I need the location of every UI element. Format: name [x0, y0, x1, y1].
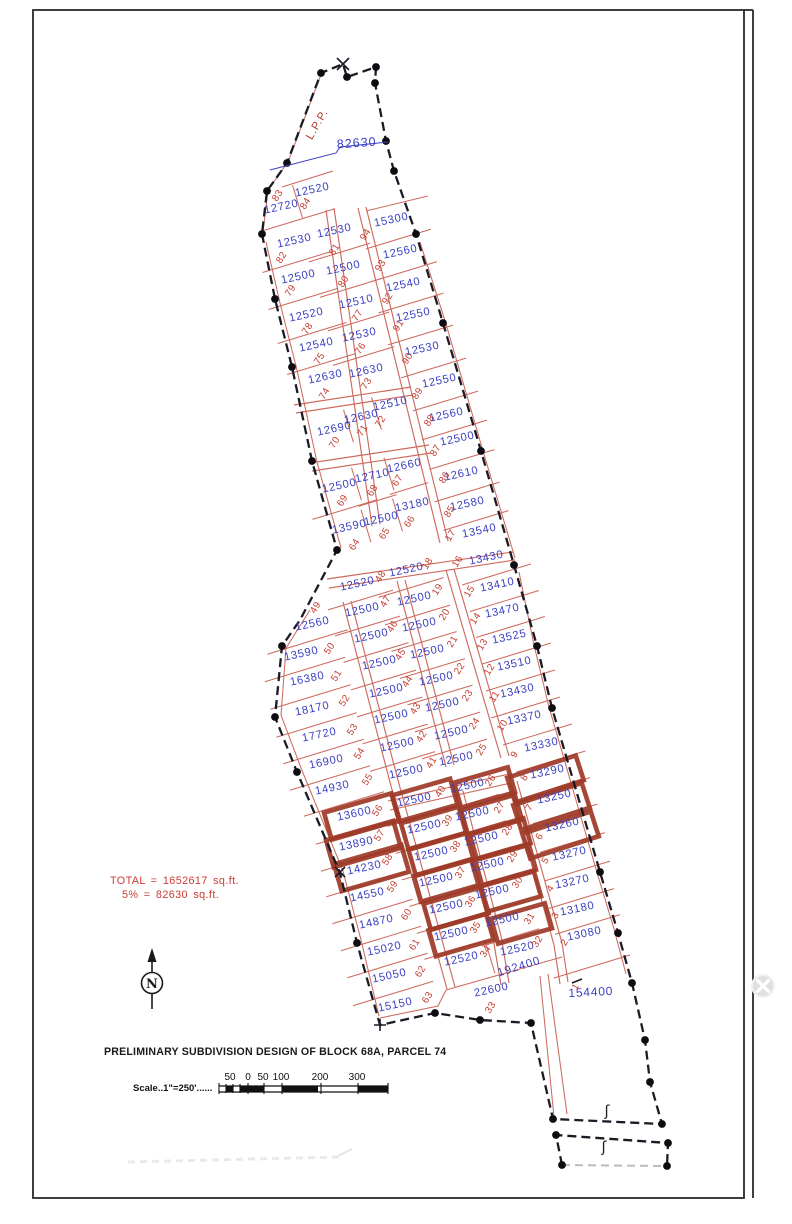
lot-number-label: 78 — [300, 321, 316, 337]
boundary-vertex-dot — [510, 561, 518, 569]
lot-number-label: 64 — [347, 537, 363, 553]
lot-edge-line — [366, 196, 428, 211]
lot-number-label: 24 — [467, 716, 483, 732]
drawing-title-text: PRELIMINARY SUBDIVISION DESIGN OF BLOCK … — [104, 1046, 446, 1058]
lot-area-label: 13250 — [536, 788, 573, 807]
scale-bar-fills — [226, 1086, 388, 1092]
boundary-vertex-dot — [614, 929, 622, 937]
lot-area-label: 16900 — [308, 753, 345, 772]
lot-area-label: 13430 — [499, 682, 536, 701]
lot-area-label: 12500 — [388, 763, 425, 782]
lot-area-label: 12500 — [433, 724, 470, 743]
lot-area-label: 12710 — [354, 467, 391, 486]
lpp-label: L.P.P. — [304, 107, 331, 142]
boundary-vertex-dot — [293, 768, 301, 776]
lot-area-label: 13590 — [331, 518, 368, 537]
boundary-vertex-dot — [333, 546, 341, 554]
lot-number-label: 80 — [336, 274, 352, 290]
boundary-vertex-dot — [288, 363, 296, 371]
lot-area-label: 13270 — [554, 873, 591, 892]
lot-number-label: 57 — [372, 828, 388, 844]
boundary-vertex-dot — [278, 642, 286, 650]
lot-area-label: 12560 — [382, 243, 419, 262]
lot-area-label: 14870 — [358, 913, 395, 932]
lot-number-label: 9 — [509, 749, 521, 760]
lot-area-label: 12530 — [316, 222, 353, 241]
lot-area-label: 12540 — [385, 276, 422, 295]
lot-area-label: 12500 — [396, 590, 433, 609]
lot-number-label: 20 — [437, 607, 453, 623]
boundary-vertex-dot — [628, 979, 636, 987]
lot-number-label: 43 — [408, 701, 424, 717]
lot-area-label: 13290 — [529, 763, 566, 782]
boundary-vertex-dot — [527, 1019, 535, 1027]
plat-drawing-canvas: 1272083125208415300941253081125308212560… — [0, 0, 792, 1224]
street-reserve-area-value: 192400 — [496, 955, 542, 979]
lot-number-label: 70 — [327, 435, 343, 451]
scale-tick-labels: 50050100200300 — [224, 1072, 365, 1083]
plus-mark-bottom — [374, 1019, 386, 1031]
boundary-vertex-dot — [549, 1115, 557, 1123]
dismiss-watermark-icon[interactable] — [752, 975, 774, 997]
lot-number-label: 37 — [453, 865, 469, 881]
lot-number-label: 55 — [360, 772, 376, 788]
boundary-vertex-dot — [372, 63, 380, 71]
lot-area-label: 13540 — [461, 522, 498, 541]
scale-tick-label: 200 — [312, 1072, 329, 1083]
lot-area-label: 12520 — [339, 575, 376, 594]
lot-number-label: 54 — [352, 746, 368, 762]
lot-number-label: 60 — [399, 907, 415, 923]
boundary-marks — [335, 58, 582, 1031]
scale-tick-label: 300 — [349, 1072, 366, 1083]
lot-area-label: 12500 — [280, 268, 317, 287]
lot-edge-line — [548, 974, 567, 1114]
lot-area-label: 13470 — [484, 602, 521, 621]
boundary-vertex-dot — [558, 1161, 566, 1169]
boundary-vertex-dot — [353, 939, 361, 947]
boundary-vertex-dot — [258, 230, 266, 238]
lot-area-label: 15020 — [366, 940, 403, 959]
lot-area-label: 12630 — [307, 368, 344, 387]
section-marker-lower: ʃ — [600, 1138, 607, 1156]
lot-number-label: 31 — [522, 911, 538, 927]
boundary-vertex-dot — [646, 1078, 654, 1086]
boundary-vertex-dot — [533, 642, 541, 650]
lot-number-label: 51 — [329, 668, 345, 684]
lot-area-label: 12500 — [379, 736, 416, 755]
boundary-vertex-dot — [658, 1120, 666, 1128]
lot-number-label: 48 — [373, 569, 389, 585]
lot-area-label: 13510 — [496, 655, 533, 674]
lot-area-label: 12560 — [294, 615, 331, 634]
boundary-vertex-dot — [390, 167, 398, 175]
drawing-frame — [33, 10, 753, 1198]
scale-tick-label: 50 — [224, 1072, 236, 1083]
lot-number-label: 6 — [534, 831, 547, 842]
lot-area-label: 12500 — [321, 477, 358, 496]
lot-number-label: 63 — [420, 990, 436, 1006]
lot-number-label: 52 — [337, 693, 353, 709]
lot-number-label: 5 — [540, 855, 553, 866]
lot-number-label: 69 — [335, 493, 351, 509]
lot-area-label: 15300 — [373, 211, 410, 230]
lot-number-label: 38 — [448, 839, 464, 855]
lot-labels-layer: 1272083125208415300941253081125308212560… — [263, 181, 614, 1016]
lot-area-label: 12500 — [363, 510, 400, 529]
scale-tick-label: 100 — [273, 1072, 290, 1083]
boundary-vertex-dot — [596, 868, 604, 876]
scale-text: Scale..1"=250'...... — [133, 1083, 212, 1094]
lot-number-label: 59 — [385, 879, 401, 895]
lot-number-label: 39 — [440, 813, 456, 829]
lot-area-label: 18170 — [294, 700, 331, 719]
boundary-vertex-dot — [431, 1009, 439, 1017]
lot-area-label: 12500 — [439, 430, 476, 449]
detached-strip-boundary — [556, 1135, 668, 1166]
section-marker-upper: ʃ — [603, 1102, 610, 1120]
lot-area-label: 12530 — [276, 232, 313, 251]
detached-strip-gray-edge — [562, 1165, 667, 1166]
boundary-vertex-dot — [641, 1036, 649, 1044]
lot-number-label: 33 — [483, 1000, 499, 1016]
lot-number-label: 82 — [274, 250, 290, 266]
scan-artifact — [128, 1149, 352, 1162]
boundary-vertex-dot — [664, 1139, 672, 1147]
total-area-text: TOTAL = 1652617 sq.ft. — [110, 875, 239, 887]
north-arrow: N — [142, 948, 163, 1009]
lot-number-label: 77 — [350, 308, 366, 324]
boundary-vertex-dot — [371, 79, 379, 87]
lot-number-label: 62 — [413, 964, 429, 980]
north-arrow-head — [148, 948, 157, 962]
boundary-vertex-dot — [439, 319, 447, 327]
lot-number-label: 75 — [312, 351, 328, 367]
lot-number-label: 19 — [430, 582, 446, 598]
lot-number-label: 15 — [462, 584, 478, 600]
lot-number-label: 25 — [474, 742, 490, 758]
boundary-vertex-dot — [552, 1131, 560, 1139]
lot-number-label: 66 — [402, 514, 418, 530]
lot-edge-line — [420, 242, 515, 558]
lot-area-label: 13180 — [559, 900, 596, 919]
lot-number-label: 34 — [478, 944, 494, 960]
lot-division-line — [263, 251, 332, 272]
scale-bar: 50050100200300 — [219, 1072, 388, 1094]
lot-area-label: 13525 — [491, 628, 528, 647]
boundary-vertex-dot — [317, 69, 325, 77]
lot-area-label: 22600 — [473, 981, 510, 1000]
x-mark-top — [337, 58, 349, 70]
lot-area-label: 12500 — [418, 670, 455, 689]
lot-area-label: 13080 — [566, 925, 603, 944]
boundary-vertex-dot — [476, 1016, 484, 1024]
lot-number-label: 47 — [378, 594, 394, 610]
lot-edge-line — [540, 976, 554, 1117]
boundary-vertex-dot — [343, 73, 351, 81]
lot-number-label: 65 — [377, 526, 393, 542]
lot-area-label: 12520 — [294, 181, 331, 200]
reserve-percent-text: 5% = 82630 sq.ft. — [122, 889, 219, 901]
lot-number-label: 53 — [345, 722, 361, 738]
boundary-vertex-dot — [271, 713, 279, 721]
lot-number-label: 61 — [407, 937, 423, 953]
scale-tick-label: 0 — [245, 1072, 251, 1083]
lot-area-label: 12550 — [421, 372, 458, 391]
boundary-vertex-dot — [663, 1162, 671, 1170]
lot-number-label: 21 — [445, 634, 461, 650]
boundary-vertex-dot — [382, 137, 390, 145]
lot-area-label: 13330 — [523, 736, 560, 755]
boundary-vertex-dot — [271, 295, 279, 303]
scale-tick-label: 50 — [257, 1072, 269, 1083]
lot-number-label: 35 — [468, 920, 484, 936]
lot-area-label: 13180 — [394, 496, 431, 515]
reserve-area-value: 82630 — [336, 135, 377, 152]
lot-area-label: 12540 — [298, 336, 335, 355]
lot-number-label: 12 — [482, 662, 498, 678]
lot-number-label: 23 — [460, 688, 476, 704]
lot-number-label: 22 — [452, 661, 468, 677]
boundary-vertex-dot — [263, 187, 271, 195]
boundary-vertex-dot — [477, 447, 485, 455]
north-label: N — [146, 977, 158, 992]
boundary-vertex-dot — [412, 230, 420, 238]
boundary-vertex-dot — [308, 457, 316, 465]
lot-number-label: 50 — [322, 641, 338, 657]
boundary-vertex-dot — [548, 704, 556, 712]
